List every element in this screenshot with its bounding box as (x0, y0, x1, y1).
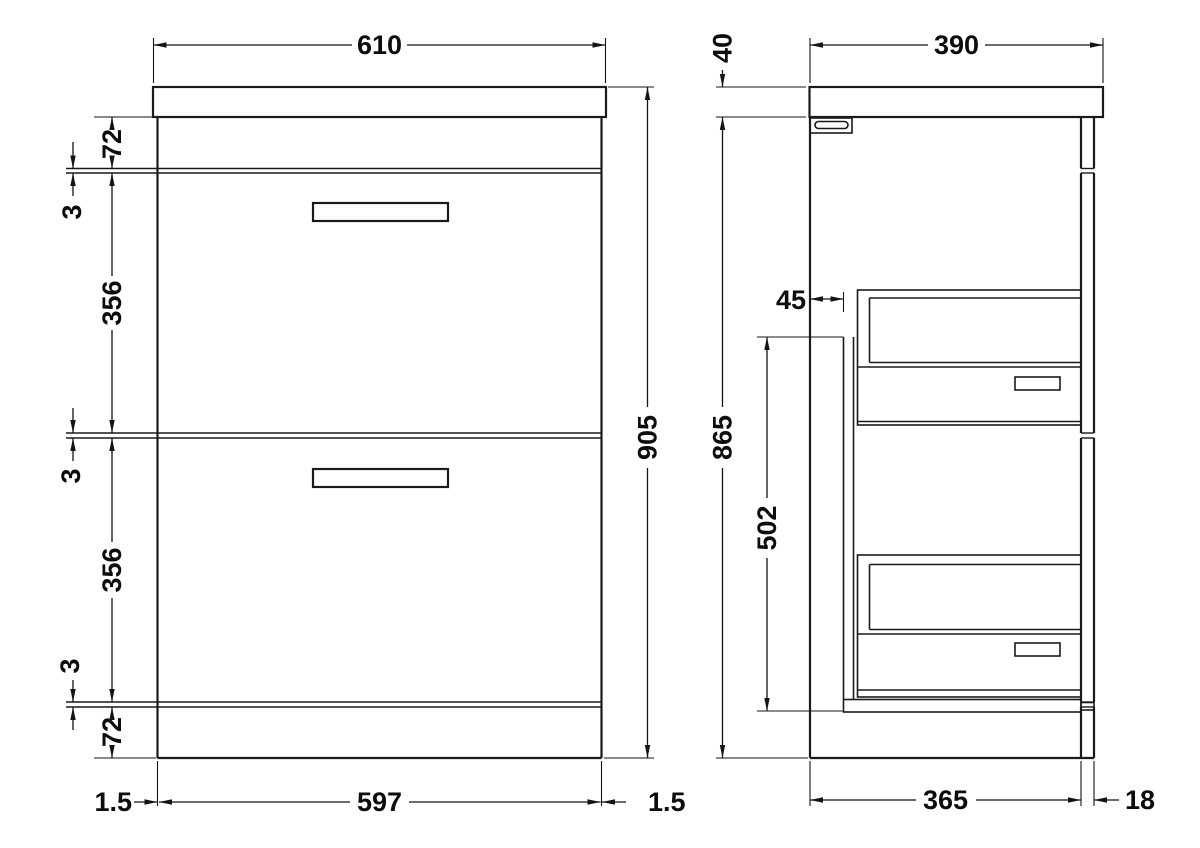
dimension-390: 390 (810, 30, 1103, 83)
side-front-gap-lines (1081, 169, 1094, 708)
dim-label-1p5-left: 1.5 (94, 787, 132, 817)
dim-label-45: 45 (776, 285, 806, 315)
dim-label-18: 18 (1125, 785, 1155, 815)
dim-label-356-drawer1: 356 (97, 280, 127, 325)
side-drawer1-box (858, 290, 1082, 425)
dim-label-905: 905 (633, 415, 663, 460)
dim-label-365: 365 (923, 785, 968, 815)
dimension-40: 40 (708, 33, 807, 117)
dimension-72-bottom: 72 (94, 707, 156, 758)
dim-label-610: 610 (357, 30, 402, 60)
side-cabinet-outline (810, 117, 1094, 758)
vanity-unit-dimension-drawing: 610 72 3 356 3 356 (0, 0, 1200, 848)
dimension-3-bottom: 3 (55, 658, 85, 730)
dim-label-3-middle: 3 (56, 468, 86, 483)
dimension-865: 865 (708, 117, 809, 758)
dimension-610: 610 (154, 30, 606, 83)
side-drawer2-runner-clip (1015, 643, 1060, 656)
side-drawer2-box (858, 555, 1082, 697)
dim-label-40: 40 (708, 33, 738, 63)
dim-label-356-drawer2: 356 (97, 547, 127, 592)
dimension-bottom-width: 1.5 597 1.5 (94, 761, 685, 817)
dim-label-390: 390 (934, 30, 979, 60)
side-worktop (810, 87, 1104, 117)
side-fixing-bracket (810, 118, 852, 133)
dimension-bottom-depth: 365 18 (810, 761, 1155, 815)
front-drawer-gap-lines (66, 169, 601, 708)
dimension-905: 905 (604, 87, 663, 758)
dimension-356-drawer1: 356 (97, 173, 127, 433)
side-view: 390 40 865 45 502 (708, 30, 1156, 815)
front-view: 610 72 3 356 3 356 (55, 30, 686, 817)
front-drawer1-handle (313, 203, 448, 221)
front-drawer2-handle (313, 469, 448, 487)
dimension-3-middle: 3 (56, 408, 86, 484)
dimension-72-top: 72 (94, 117, 152, 169)
dim-label-502: 502 (752, 505, 782, 550)
side-bottom-shelf (844, 700, 1095, 713)
side-drawer1-runner-clip (1015, 377, 1060, 390)
dim-label-3-top: 3 (57, 204, 87, 219)
front-worktop (153, 87, 606, 117)
technical-drawing-page: 610 72 3 356 3 356 (0, 0, 1200, 848)
dimension-502: 502 (752, 337, 844, 711)
dimension-356-drawer2: 356 (97, 438, 127, 702)
dim-label-72-top: 72 (97, 129, 127, 159)
dimension-3-top: 3 (57, 142, 87, 220)
dim-label-72-bottom: 72 (97, 717, 127, 747)
dim-label-1p5-right: 1.5 (648, 787, 686, 817)
dim-label-865: 865 (708, 415, 738, 460)
dim-label-3-bottom: 3 (55, 658, 85, 673)
dim-label-597: 597 (357, 787, 402, 817)
side-runner-rail (844, 292, 854, 700)
